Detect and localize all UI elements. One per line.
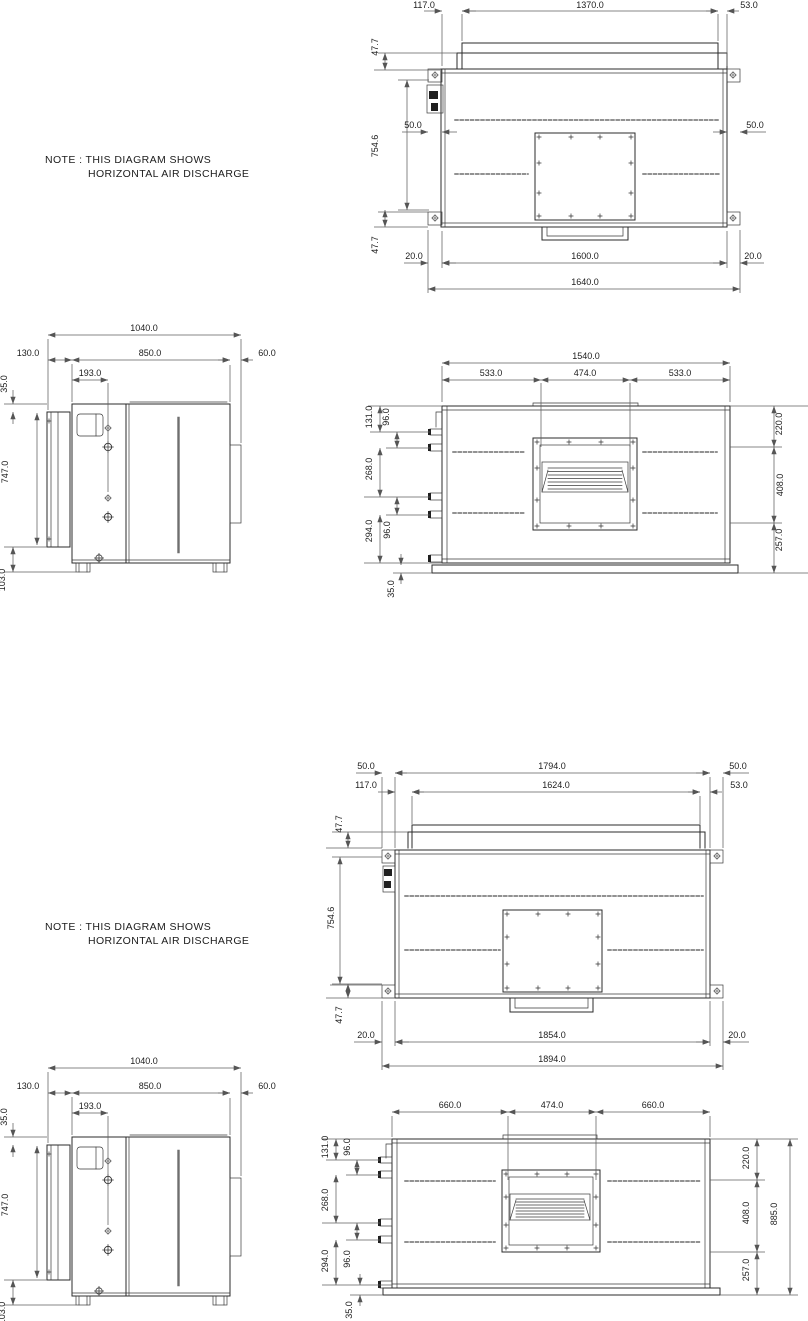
dim-base-gap: 35.0: [386, 580, 396, 598]
corner-bracket: [710, 850, 723, 863]
dim-front-offset: 60.0: [258, 348, 276, 358]
corner-bracket: [727, 212, 740, 225]
pipe-stubs: [428, 429, 442, 562]
pipe-stub-icon: [103, 1245, 114, 1256]
dim-top-gap: 35.0: [0, 1108, 9, 1126]
pipe-bracket: [386, 1144, 392, 1158]
service-opening: [503, 910, 602, 992]
pipe-stub-icon: [105, 1228, 112, 1235]
louver-blades: [510, 1199, 590, 1220]
note-line2: HORIZONTAL AIR DISCHARGE: [88, 168, 249, 180]
dim-rear-depth: 130.0: [17, 348, 40, 358]
dim-inner-width: 1600.0: [571, 251, 599, 261]
dim-left-offset: 117.0: [413, 0, 435, 10]
dim-duct-height: 408.0: [775, 474, 785, 497]
valve-fitting: [431, 103, 438, 111]
dim-duct-height: 408.0: [741, 1202, 751, 1225]
corner-bracket: [382, 850, 395, 863]
unit-body-outline: [392, 1139, 710, 1288]
dim-gap1: 96.0: [342, 1138, 352, 1156]
rear-panel: [47, 412, 70, 547]
dim-body-depth: 850.0: [139, 348, 162, 358]
dim-panel-height: 747.0: [0, 461, 10, 484]
bolt-icon: [385, 853, 392, 860]
bolt-icon: [385, 988, 392, 995]
foot: [213, 563, 227, 572]
dim-front-offset: 60.0: [258, 1081, 276, 1091]
dim-right-span: 533.0: [669, 368, 692, 378]
louver-panel: [542, 462, 628, 492]
louver-blades: [542, 468, 628, 492]
bolt-icon: [432, 215, 439, 222]
discharge-flange: [230, 1178, 241, 1256]
unit2-side-view: 1040.0 130.0 850.0 60.0 193.0 35.0 747.0…: [0, 1056, 276, 1321]
terminal-box: [77, 414, 103, 436]
bolt-icon: [714, 853, 721, 860]
valve-fitting: [429, 91, 438, 99]
dim-pipe2: 294.0: [320, 1250, 330, 1273]
pipe-stub-icon: [103, 512, 114, 523]
dim-body-depth: 754.6: [326, 907, 336, 930]
dim-gap2: 96.0: [342, 1250, 352, 1268]
dim-top-to-duct: 220.0: [741, 1147, 751, 1170]
dim-right-offset: 53.0: [740, 0, 758, 10]
dim-foot-right: 20.0: [744, 251, 762, 261]
dim-top-flange: 47.7: [334, 815, 344, 833]
unit1-side-view: 1040.0 130.0 850.0 60.0 193.0 35.0 747.0…: [0, 323, 276, 591]
louver-panel: [510, 1194, 590, 1220]
dim-base-gap: 35.0: [344, 1301, 354, 1319]
dim-right-span: 660.0: [642, 1100, 665, 1110]
drawing-sheet: NOTE : THIS DIAGRAM SHOWS HORIZONTAL AIR…: [0, 0, 808, 1321]
unit2-side-view-object: [47, 1135, 241, 1305]
dim-inner-width: 1854.0: [538, 1030, 566, 1040]
dim-pipe-span: 268.0: [320, 1189, 330, 1212]
pipe-bracket: [436, 412, 442, 427]
dim-panel-height: 747.0: [0, 1194, 10, 1217]
dim-gap1: 96.0: [381, 408, 391, 426]
service-opening: [535, 133, 635, 220]
unit2-front-view-dims: [322, 1112, 798, 1306]
unit2-top-view-object: [382, 825, 723, 1012]
dim-below-duct: 257.0: [774, 529, 784, 552]
note-line1: NOTE : THIS DIAGRAM SHOWS: [45, 921, 211, 933]
bolt-icon: [730, 215, 737, 222]
dim-left-span: 533.0: [480, 368, 503, 378]
dim-left-span: 660.0: [439, 1100, 462, 1110]
dim-coil-width: 1624.0: [542, 780, 570, 790]
note-line2: HORIZONTAL AIR DISCHARGE: [88, 935, 249, 947]
unit1-top-view: 117.0 1370.0 53.0 47.7 754.6 47.7 50.0 5…: [370, 0, 766, 293]
dim-duct-width: 474.0: [541, 1100, 564, 1110]
fan-discharge-frame: [533, 438, 637, 530]
unit1-front-view: 1540.0 533.0 474.0 533.0 131.0 96.0 268.…: [364, 351, 808, 598]
dim-gap2: 96.0: [382, 521, 392, 539]
dim-duct-width: 474.0: [574, 368, 597, 378]
dim-overall-width: 1540.0: [572, 351, 600, 361]
dim-bracket-right: 50.0: [746, 120, 764, 130]
dim-top-flange: 47.7: [370, 38, 380, 56]
terminal-box: [77, 1147, 103, 1169]
unit1-front-view-object: [428, 403, 738, 573]
bolt-icon: [714, 988, 721, 995]
note-unit2: NOTE : THIS DIAGRAM SHOWS HORIZONTAL AIR…: [45, 921, 249, 947]
corner-bracket: [727, 69, 740, 82]
discharge-flange: [230, 445, 241, 523]
dim-left-offset: 117.0: [355, 780, 377, 790]
foot: [213, 1296, 227, 1305]
unit2-side-view-dims: [4, 1068, 253, 1305]
bolt-icon: [432, 72, 439, 79]
dim-overall-height: 885.0: [769, 1203, 779, 1226]
corner-bracket: [382, 985, 395, 998]
dim-bracket-left: 50.0: [404, 120, 422, 130]
dim-bottom-flange: 47.7: [370, 236, 380, 254]
dim-pipe2: 294.0: [364, 520, 374, 543]
dim-overall-depth: 1040.0: [130, 323, 158, 333]
dim-body-depth: 754.6: [370, 135, 380, 158]
pipe-stubs: [378, 1157, 392, 1288]
dim-pipe-offset: 193.0: [79, 368, 102, 378]
dim-pipe-offset: 193.0: [79, 1101, 102, 1111]
unit-body-outline: [442, 406, 730, 563]
unit1-top-view-object: [427, 43, 740, 240]
foot: [76, 563, 90, 572]
dim-foot-left: 20.0: [405, 251, 423, 261]
rear-panel: [47, 1145, 70, 1280]
drain-stub-icon: [94, 553, 103, 562]
drain-stub-icon: [94, 1286, 103, 1295]
unit2-top-view: 50.0 1794.0 50.0 117.0 1624.0 53.0 47.7 …: [326, 761, 749, 1070]
unit1-side-view-dims: [4, 335, 253, 572]
dim-bottom-gap: 103.0: [0, 569, 7, 592]
dim-top-to-duct: 220.0: [774, 413, 784, 436]
dim-overall-width: 1894.0: [538, 1054, 566, 1064]
dim-coil-width: 1370.0: [576, 0, 604, 10]
dim-top-gap: 35.0: [0, 375, 9, 393]
dim-overall-width: 1640.0: [571, 277, 599, 287]
dim-pipe1: 131.0: [364, 406, 374, 429]
dim-foot-right: 20.0: [728, 1030, 746, 1040]
dim-pipe-span: 268.0: [364, 458, 374, 481]
note-line1: NOTE : THIS DIAGRAM SHOWS: [45, 154, 211, 166]
dim-bracket-right: 50.0: [729, 761, 747, 771]
note-unit1: NOTE : THIS DIAGRAM SHOWS HORIZONTAL AIR…: [45, 154, 249, 180]
unit2-top-view-dims: [326, 773, 749, 1070]
dim-body-depth: 850.0: [139, 1081, 162, 1091]
unit-body-outline: [441, 69, 727, 227]
dim-panel-width: 1794.0: [538, 761, 566, 771]
valve-fitting: [384, 869, 392, 876]
dim-bracket-left: 50.0: [357, 761, 375, 771]
dim-rear-depth: 130.0: [17, 1081, 40, 1091]
dim-foot-left: 20.0: [357, 1030, 375, 1040]
base-channel: [383, 1288, 720, 1295]
base-channel: [432, 565, 738, 573]
dim-right-offset: 53.0: [730, 780, 748, 790]
bottom-flange: [542, 227, 628, 240]
unit2-front-view-object: [378, 1135, 720, 1295]
dim-bottom-flange: 47.7: [334, 1006, 344, 1024]
dim-pipe1: 131.0: [320, 1136, 330, 1159]
dim-bottom-gap: 103.0: [0, 1302, 7, 1321]
unit1-front-view-dims: [364, 363, 808, 584]
bolt-icon: [730, 72, 737, 79]
dimension-drawing: NOTE : THIS DIAGRAM SHOWS HORIZONTAL AIR…: [0, 0, 808, 1321]
dim-overall-depth: 1040.0: [130, 1056, 158, 1066]
unit2-front-view: 660.0 474.0 660.0 131.0 96.0 268.0 96.0 …: [320, 1100, 798, 1319]
corner-bracket: [710, 985, 723, 998]
valve-fitting: [384, 881, 391, 888]
unit-body-outline: [395, 850, 710, 998]
pipe-stub-icon: [105, 495, 112, 502]
unit1-side-view-object: [47, 402, 241, 572]
bottom-flange: [510, 998, 593, 1012]
foot: [76, 1296, 90, 1305]
dim-below-duct: 257.0: [741, 1259, 751, 1282]
